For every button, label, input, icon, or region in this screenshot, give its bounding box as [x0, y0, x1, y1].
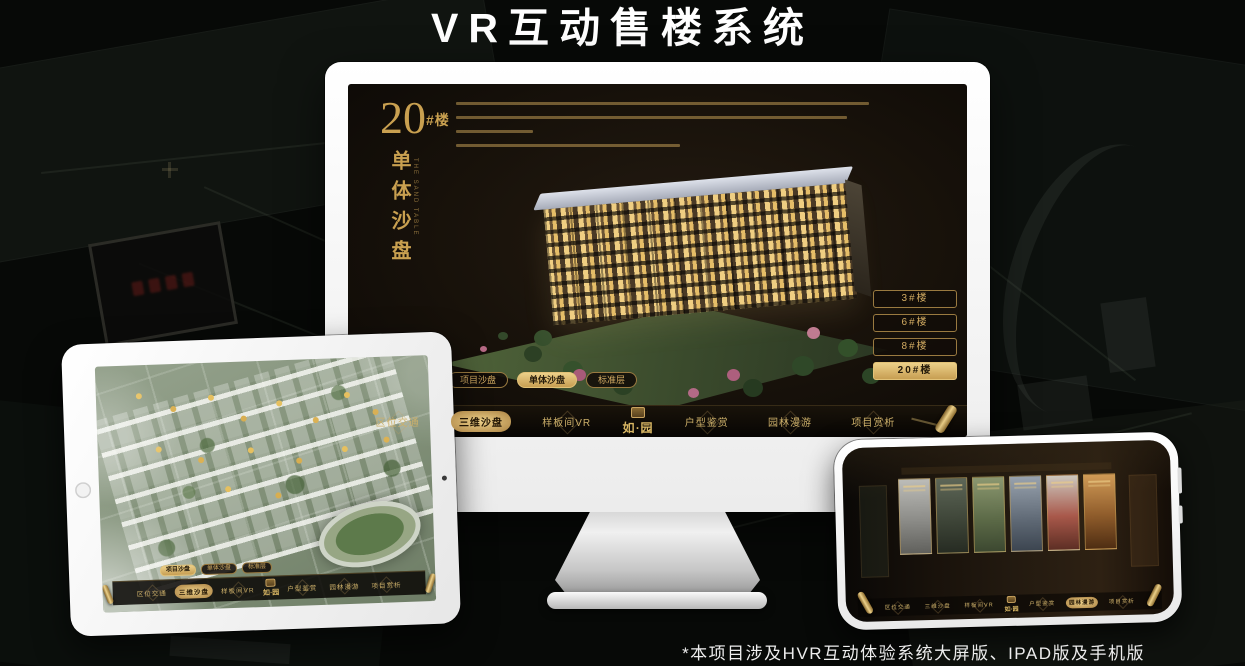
interior-door	[859, 485, 889, 578]
showcase-canvas: VR互动售楼系统 20#楼 单体沙盘 THE SAND TABLE	[0, 0, 1245, 666]
scene-thumbnail-landscape[interactable]	[972, 476, 1006, 553]
floor-button-6[interactable]: 6#楼	[873, 314, 957, 332]
tablet-subtab-project-sandtable[interactable]: 项目沙盘	[160, 564, 196, 576]
phone-project-logo: 如·园	[1004, 595, 1018, 612]
sandtable-subtabs: 项目沙盘 单体沙盘 标准层	[448, 372, 637, 388]
logo-seal-icon	[1007, 595, 1016, 602]
scroll-menu-icon[interactable]	[913, 406, 959, 434]
model-flower-bushes	[480, 346, 487, 352]
interior-door	[1129, 474, 1159, 567]
background-building	[1100, 297, 1155, 373]
subtab-project-sandtable[interactable]: 项目沙盘	[448, 372, 508, 388]
monitor-stand-base	[547, 592, 767, 609]
building-number-heading: 20#楼	[380, 92, 450, 146]
tablet-subtab-standard-floor[interactable]: 标准层	[242, 562, 272, 574]
tablet-nav-showroom-vr[interactable]: 样板间VR	[217, 582, 259, 597]
phone-device: 区位交通 三维沙盘 样板间VR 如·园 户型鉴赏 园林漫游 项目赏析	[834, 432, 1183, 631]
phone-bottom-nav: 区位交通 三维沙盘 样板间VR 如·园 户型鉴赏 园林漫游 项目赏析	[858, 591, 1162, 617]
phone-side-button[interactable]	[1178, 505, 1182, 523]
tablet-screen: 项目沙盘 单体沙盘 标准层 区位交通 三维沙盘 样板间VR 如·园 户型鉴赏 园…	[95, 355, 436, 612]
floor-button-3[interactable]: 3#楼	[873, 290, 957, 308]
floor-selector-group: 3#楼 6#楼 8#楼 20#楼	[873, 290, 957, 380]
nav-item-location[interactable]: 区位交通	[368, 411, 428, 432]
background-plaque	[88, 221, 238, 347]
tablet-nav-location[interactable]: 区位交通	[133, 585, 171, 600]
phone-nav-location[interactable]: 区位交通	[882, 601, 914, 613]
tablet-nav-floorplans[interactable]: 户型鉴赏	[283, 579, 321, 594]
scene-thumbnail-courtyard[interactable]	[898, 478, 932, 555]
sand-table-title-vertical: 单体沙盘	[385, 150, 414, 270]
phone-nav-project-gallery[interactable]: 项目赏析	[1106, 595, 1138, 607]
tablet-nav-3d-sandtable[interactable]: 三维沙盘	[175, 583, 213, 598]
compass-star-icon	[168, 162, 171, 178]
scene-thumbnail-tower[interactable]	[1009, 475, 1043, 552]
building-intro-paragraph	[456, 102, 886, 158]
sand-table-title-english: THE SAND TABLE	[412, 158, 418, 236]
phone-nav-showroom-vr[interactable]: 样板间VR	[961, 599, 996, 611]
nav-item-project-gallery[interactable]: 项目赏析	[843, 411, 903, 432]
monitor-stand-neck	[555, 512, 760, 593]
subtab-single-sandtable[interactable]: 单体沙盘	[517, 372, 577, 388]
project-logo: 如·园	[622, 407, 653, 436]
tablet-camera-icon	[442, 476, 447, 481]
nav-item-garden-tour[interactable]: 园林漫游	[760, 411, 820, 432]
tablet-nav-garden-tour[interactable]: 园林漫游	[325, 578, 363, 593]
floor-button-8[interactable]: 8#楼	[873, 338, 957, 356]
nav-item-floorplans[interactable]: 户型鉴赏	[677, 411, 737, 432]
scene-thumbnail-facade[interactable]	[1046, 474, 1080, 551]
model-trees	[498, 332, 508, 340]
tablet-nav-project-gallery[interactable]: 项目赏析	[367, 577, 405, 592]
scene-thumbnail-lobby[interactable]	[1083, 473, 1117, 550]
tablet-device: 项目沙盘 单体沙盘 标准层 区位交通 三维沙盘 样板间VR 如·园 户型鉴赏 园…	[61, 331, 461, 636]
phone-side-button[interactable]	[1177, 467, 1182, 493]
logo-seal-icon	[631, 407, 645, 418]
building-3d-model[interactable]	[542, 167, 859, 343]
nav-item-3d-sandtable[interactable]: 三维沙盘	[451, 411, 511, 432]
subtab-standard-floor[interactable]: 标准层	[586, 372, 637, 388]
phone-screen: 区位交通 三维沙盘 样板间VR 如·园 户型鉴赏 园林漫游 项目赏析	[842, 440, 1174, 623]
scene-thumbnail-interior[interactable]	[935, 477, 969, 554]
page-title: VR互动售楼系统	[0, 0, 1245, 56]
tablet-subtab-single-sandtable[interactable]: 单体沙盘	[201, 563, 237, 575]
phone-nav-3d-sandtable[interactable]: 三维沙盘	[922, 600, 954, 612]
tablet-project-logo: 如·园	[262, 578, 279, 598]
interior-beam	[901, 462, 1111, 474]
floor-button-20[interactable]: 20#楼	[873, 362, 957, 380]
scene-thumbnail-strip	[898, 473, 1117, 555]
nav-item-showroom-vr[interactable]: 样板间VR	[534, 411, 599, 432]
phone-nav-garden-tour[interactable]: 园林漫游	[1066, 596, 1098, 608]
tablet-home-button[interactable]	[75, 482, 92, 499]
phone-nav-floorplans[interactable]: 户型鉴赏	[1026, 597, 1058, 609]
footnote-text: *本项目涉及HVR互动体验系统大屏版、IPAD版及手机版	[682, 639, 1145, 664]
background-building	[1017, 375, 1093, 430]
logo-seal-icon	[266, 579, 276, 587]
